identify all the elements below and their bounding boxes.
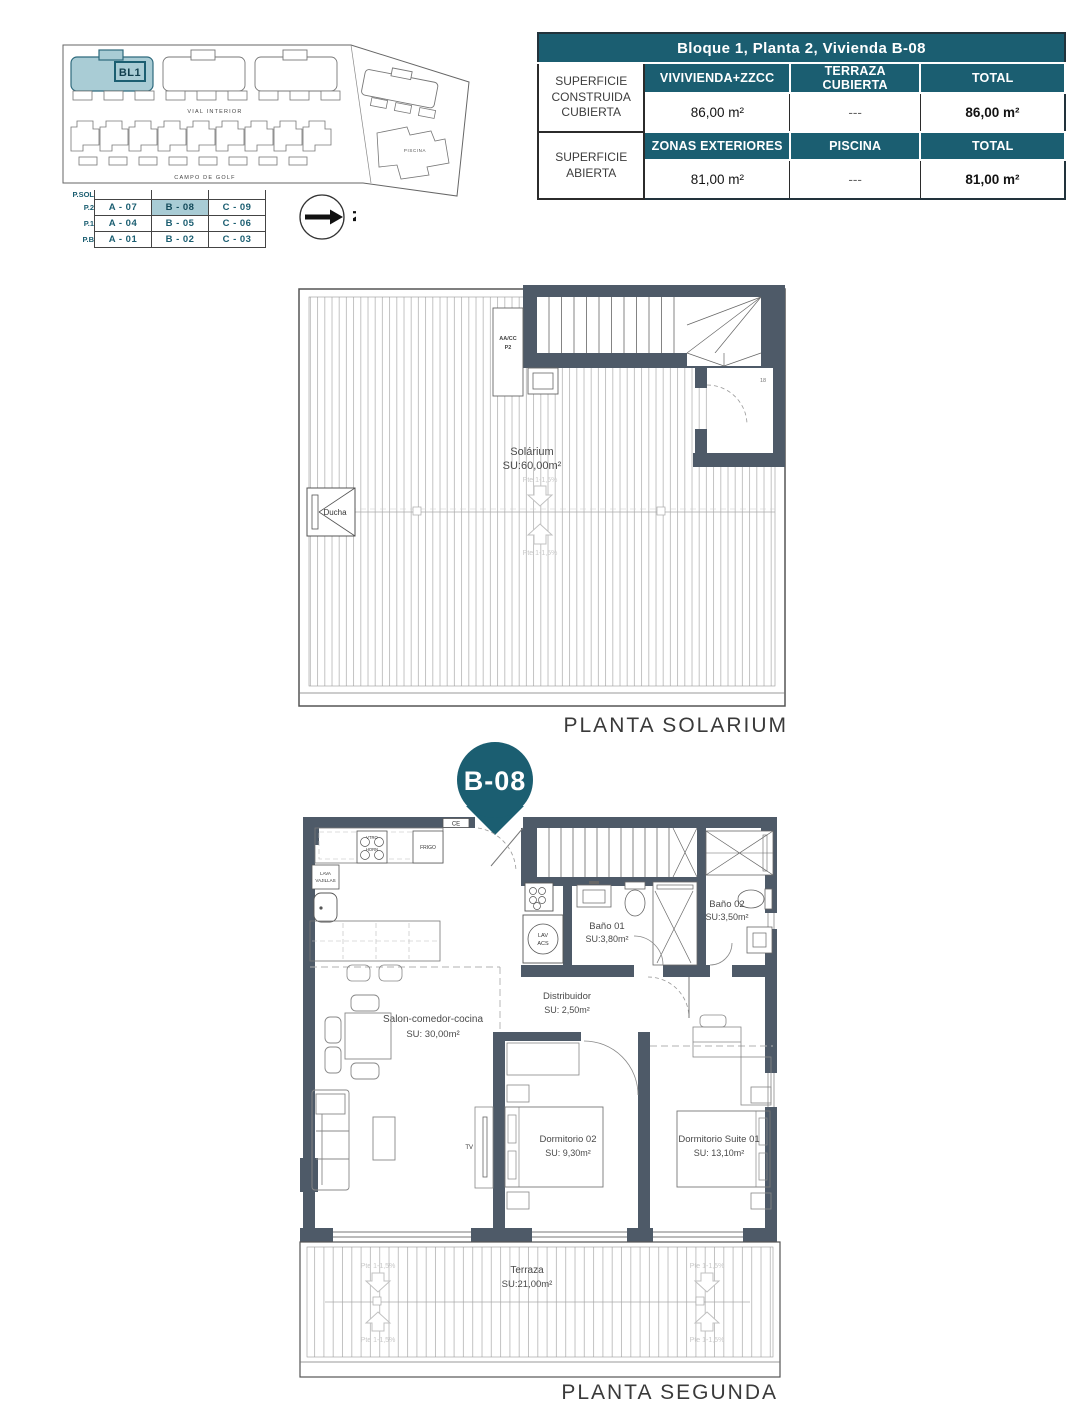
road-label: VIAL INTERIOR — [187, 109, 242, 115]
salon-name: Salon-comedor-cocina — [383, 1014, 483, 1025]
pillow — [508, 1151, 516, 1179]
row-label-superficie-construida: SUPERFICIE CONSTRUIDA CUBIERTA — [538, 63, 644, 132]
sink-counter — [577, 885, 611, 907]
coffee-table — [373, 1117, 395, 1160]
shower-1 — [653, 882, 697, 965]
floor-label-p1: P.1 — [62, 216, 95, 232]
value-total-1: 86,00 m² — [920, 93, 1065, 132]
tick-cell — [209, 190, 266, 200]
golf-label: CAMPO DE GOLF — [174, 175, 235, 181]
floor-label-p2: P.2 — [62, 200, 95, 216]
fridge: FRIGO — [413, 831, 443, 863]
unit-cell-a04: A - 04 — [95, 216, 152, 232]
value-vivienda: 86,00 m² — [644, 93, 790, 132]
segunda-caption: PLANTA SEGUNDA — [295, 1381, 778, 1405]
slope-label-up: Pte 1-1,5% — [523, 550, 558, 557]
north-letter: N — [349, 210, 356, 222]
brochure-page: { "colors": { "accent_teal": "#1b5e71", … — [0, 0, 1084, 1425]
dorm2-area: SU: 9,30m² — [545, 1148, 591, 1158]
table-row: SUPERFICIE ABIERTA ZONAS EXTERIORES PISC… — [538, 132, 1065, 160]
washing-machine: LAV ACS — [523, 915, 563, 963]
value-terraza-cubierta: --- — [790, 93, 920, 132]
acs-label: ACS — [537, 941, 549, 947]
col-header-total-1: TOTAL — [920, 63, 1065, 93]
segunda-floor-plan: CE LAV ACS — [295, 815, 792, 1385]
solarium-room-area: SU:60,00m² — [503, 460, 562, 472]
table-row: Bloque 1, Planta 2, Vivienda B-08 — [538, 33, 1065, 63]
site-plan: BL1 VIAL INTERIOR CAMPO DE GOLF — [55, 33, 475, 198]
nightstand — [507, 1192, 529, 1209]
distribuidor-name: Distribuidor — [543, 991, 591, 1002]
value-piscina: --- — [790, 160, 920, 199]
unit-cell-c09: C - 09 — [209, 200, 266, 216]
solarium-room-name: Solárium — [510, 446, 553, 458]
suite-door-arc — [648, 977, 689, 1018]
terraza-area: SU:21,00m² — [502, 1279, 553, 1290]
sink2-counter — [747, 927, 772, 953]
stair-treads-area — [537, 297, 687, 353]
lav-label: LAV — [538, 933, 548, 939]
pool-label: PISCINA — [404, 148, 426, 153]
suite-area: SU: 13,10m² — [694, 1148, 745, 1158]
pillow — [508, 1115, 516, 1143]
bano1-name: Baño 01 — [589, 921, 624, 932]
walls — [300, 817, 777, 1242]
shower-label: Ducha — [323, 508, 347, 517]
col-header-total-2: TOTAL — [920, 132, 1065, 160]
parking-row-bottom — [79, 157, 307, 165]
pool-building-outline — [377, 127, 449, 179]
dining-chair — [351, 1063, 379, 1079]
table-row: SUPERFICIE CONSTRUIDA CUBIERTA VIVIVIEND… — [538, 63, 1065, 93]
dining-set — [325, 995, 391, 1079]
solarium-caption: PLANTA SOLARIUM — [295, 714, 788, 738]
compass-arrow-head-icon — [330, 210, 343, 225]
faucet — [589, 881, 599, 884]
table-row: P.SOL — [62, 190, 266, 200]
dining-chair — [325, 1047, 341, 1073]
building-block-2 — [163, 50, 245, 91]
lava-label-2: VAJILLAS — [315, 878, 335, 883]
vtro-label: VTRO — [366, 835, 378, 840]
tv-label: TV — [465, 1145, 473, 1151]
dishwasher: LAVA VAJILLAS — [312, 865, 339, 889]
floor-label-psol: P.SOL — [62, 190, 95, 200]
bed-2 — [505, 1107, 603, 1187]
nightstand — [507, 1085, 529, 1102]
bathroom-2: Baño 02 SU:3,50m² — [705, 831, 773, 965]
value-zonas-exteriores: 81,00 m² — [644, 160, 790, 199]
tick-cell — [152, 190, 209, 200]
unit-cell-c03: C - 03 — [209, 232, 266, 248]
tick-cell — [95, 190, 152, 200]
table-row: P.2 A - 07 B - 08 C - 09 — [62, 200, 266, 216]
col-header-vivienda: VIVIVIENDA+ZZCC — [644, 63, 790, 93]
stairs — [549, 828, 697, 877]
chimney-box — [528, 368, 558, 394]
terrace-slope-label: Pte 1-1,5% — [361, 1337, 396, 1344]
bedroom-2: Dormitorio 02 SU: 9,30m² — [505, 1043, 603, 1209]
salon-area: SU: 30,00m² — [406, 1029, 459, 1040]
landing-wall-upper — [695, 368, 707, 388]
compass-arrow-shaft — [305, 215, 330, 220]
terrace-slope-label: Pte 1-1,5% — [690, 1263, 725, 1270]
kitchen-island — [310, 921, 440, 961]
electrical-box: CE — [443, 819, 469, 828]
value-total-2: 81,00 m² — [920, 160, 1065, 199]
ac-label-line1: AA/CC — [499, 336, 516, 342]
solarium-floor-plan: 18 AA/CC P2 Solárium SU:60,00m — [295, 283, 792, 718]
dining-chair — [325, 1017, 341, 1043]
entrance-door — [478, 828, 523, 871]
terrace-sliders — [333, 1232, 743, 1237]
desk-chair — [700, 1015, 726, 1027]
horn-label: HORN — [366, 847, 378, 852]
toilet2-tank — [765, 889, 772, 909]
bedroom-suite: Dormitorio Suite 01 SU: 13,10m² — [677, 1015, 771, 1209]
slope-label-down: Pte 1-1,5% — [523, 477, 558, 484]
col-header-piscina: PISCINA — [790, 132, 920, 160]
boiler-unit — [525, 883, 553, 911]
unit-cell-b02: B - 02 — [152, 232, 209, 248]
unit-cell-c06: C - 06 — [209, 216, 266, 232]
ce-label: CE — [452, 822, 460, 828]
row-label-superficie-abierta: SUPERFICIE ABIERTA — [538, 132, 644, 199]
shower-2 — [706, 831, 773, 875]
unit-cell-b05: B - 05 — [152, 216, 209, 232]
dorm2-name: Dormitorio 02 — [539, 1134, 596, 1145]
wardrobe-2 — [507, 1043, 579, 1075]
stair-wall-bottom — [693, 453, 785, 467]
hob: VTRO HORN — [357, 831, 387, 863]
unit-cell-b08-highlighted: B - 08 — [152, 200, 209, 216]
outdoor-shower: Ducha — [307, 488, 355, 536]
unit-cell-a07: A - 07 — [95, 200, 152, 216]
terrace: Terraza SU:21,00m² Pte 1-1,5% Pte 1-1,5%… — [300, 1242, 780, 1377]
col-header-zonas-exteriores: ZONAS EXTERIORES — [644, 132, 790, 160]
terrace-slope-label: Pte 1-1,5% — [690, 1337, 725, 1344]
kitchen: VTRO HORN FRIGO LAVA VAJILLAS — [310, 828, 443, 981]
floor-label-pb: P.B — [62, 232, 95, 248]
unit-matrix-table: P.SOL P.2 A - 07 B - 08 C - 09 P.1 A - 0… — [62, 190, 266, 248]
terraza-name: Terraza — [510, 1265, 544, 1276]
table-row: P.1 A - 04 B - 05 C - 06 — [62, 216, 266, 232]
toilet-bowl — [625, 890, 645, 916]
north-arrow: N — [296, 190, 356, 246]
area-table-title: Bloque 1, Planta 2, Vivienda B-08 — [538, 33, 1065, 63]
lava-label-1: LAVA — [320, 871, 331, 876]
bano2-door-arc — [710, 943, 732, 965]
building-block-3 — [255, 50, 337, 91]
parking-row-top — [73, 91, 340, 100]
unit-cell-a01: A - 01 — [95, 232, 152, 248]
stair-count: 18 — [760, 378, 766, 384]
distribuidor-area: SU: 2,50m² — [544, 1005, 590, 1015]
pin-label: B-08 — [464, 766, 527, 796]
table-row: P.B A - 01 B - 02 C - 03 — [62, 232, 266, 248]
dorm2-door-arc — [584, 1041, 638, 1095]
bano2-area: SU:3,50m² — [705, 912, 748, 922]
kitchen-sink — [314, 893, 337, 922]
site-inner-boundary — [351, 45, 371, 183]
dining-chair — [351, 995, 379, 1011]
frigo-label: FRIGO — [420, 845, 436, 851]
bano1-area: SU:3,80m² — [585, 934, 628, 944]
surface-area-table: Bloque 1, Planta 2, Vivienda B-08 SUPERF… — [537, 32, 1066, 200]
col-header-terraza-cubierta: TERRAZA CUBIERTA — [790, 63, 920, 93]
landing-wall-lower — [695, 429, 707, 453]
terrace-slope-label: Pte 1-1,5% — [361, 1263, 396, 1270]
stair-wall-right — [773, 368, 785, 467]
bathroom-1: Baño 01 SU:3,80m² — [577, 881, 697, 965]
bl1-label: BL1 — [119, 67, 141, 79]
houses-row — [71, 121, 331, 151]
ac-label-line2: P2 — [505, 345, 512, 351]
bano2-name: Baño 02 — [709, 899, 744, 910]
toilet-tank — [625, 882, 645, 889]
suite-name: Dormitorio Suite 01 — [678, 1134, 759, 1145]
tv-unit: TV — [465, 1107, 493, 1188]
ac-unit: AA/CC P2 — [493, 308, 523, 396]
